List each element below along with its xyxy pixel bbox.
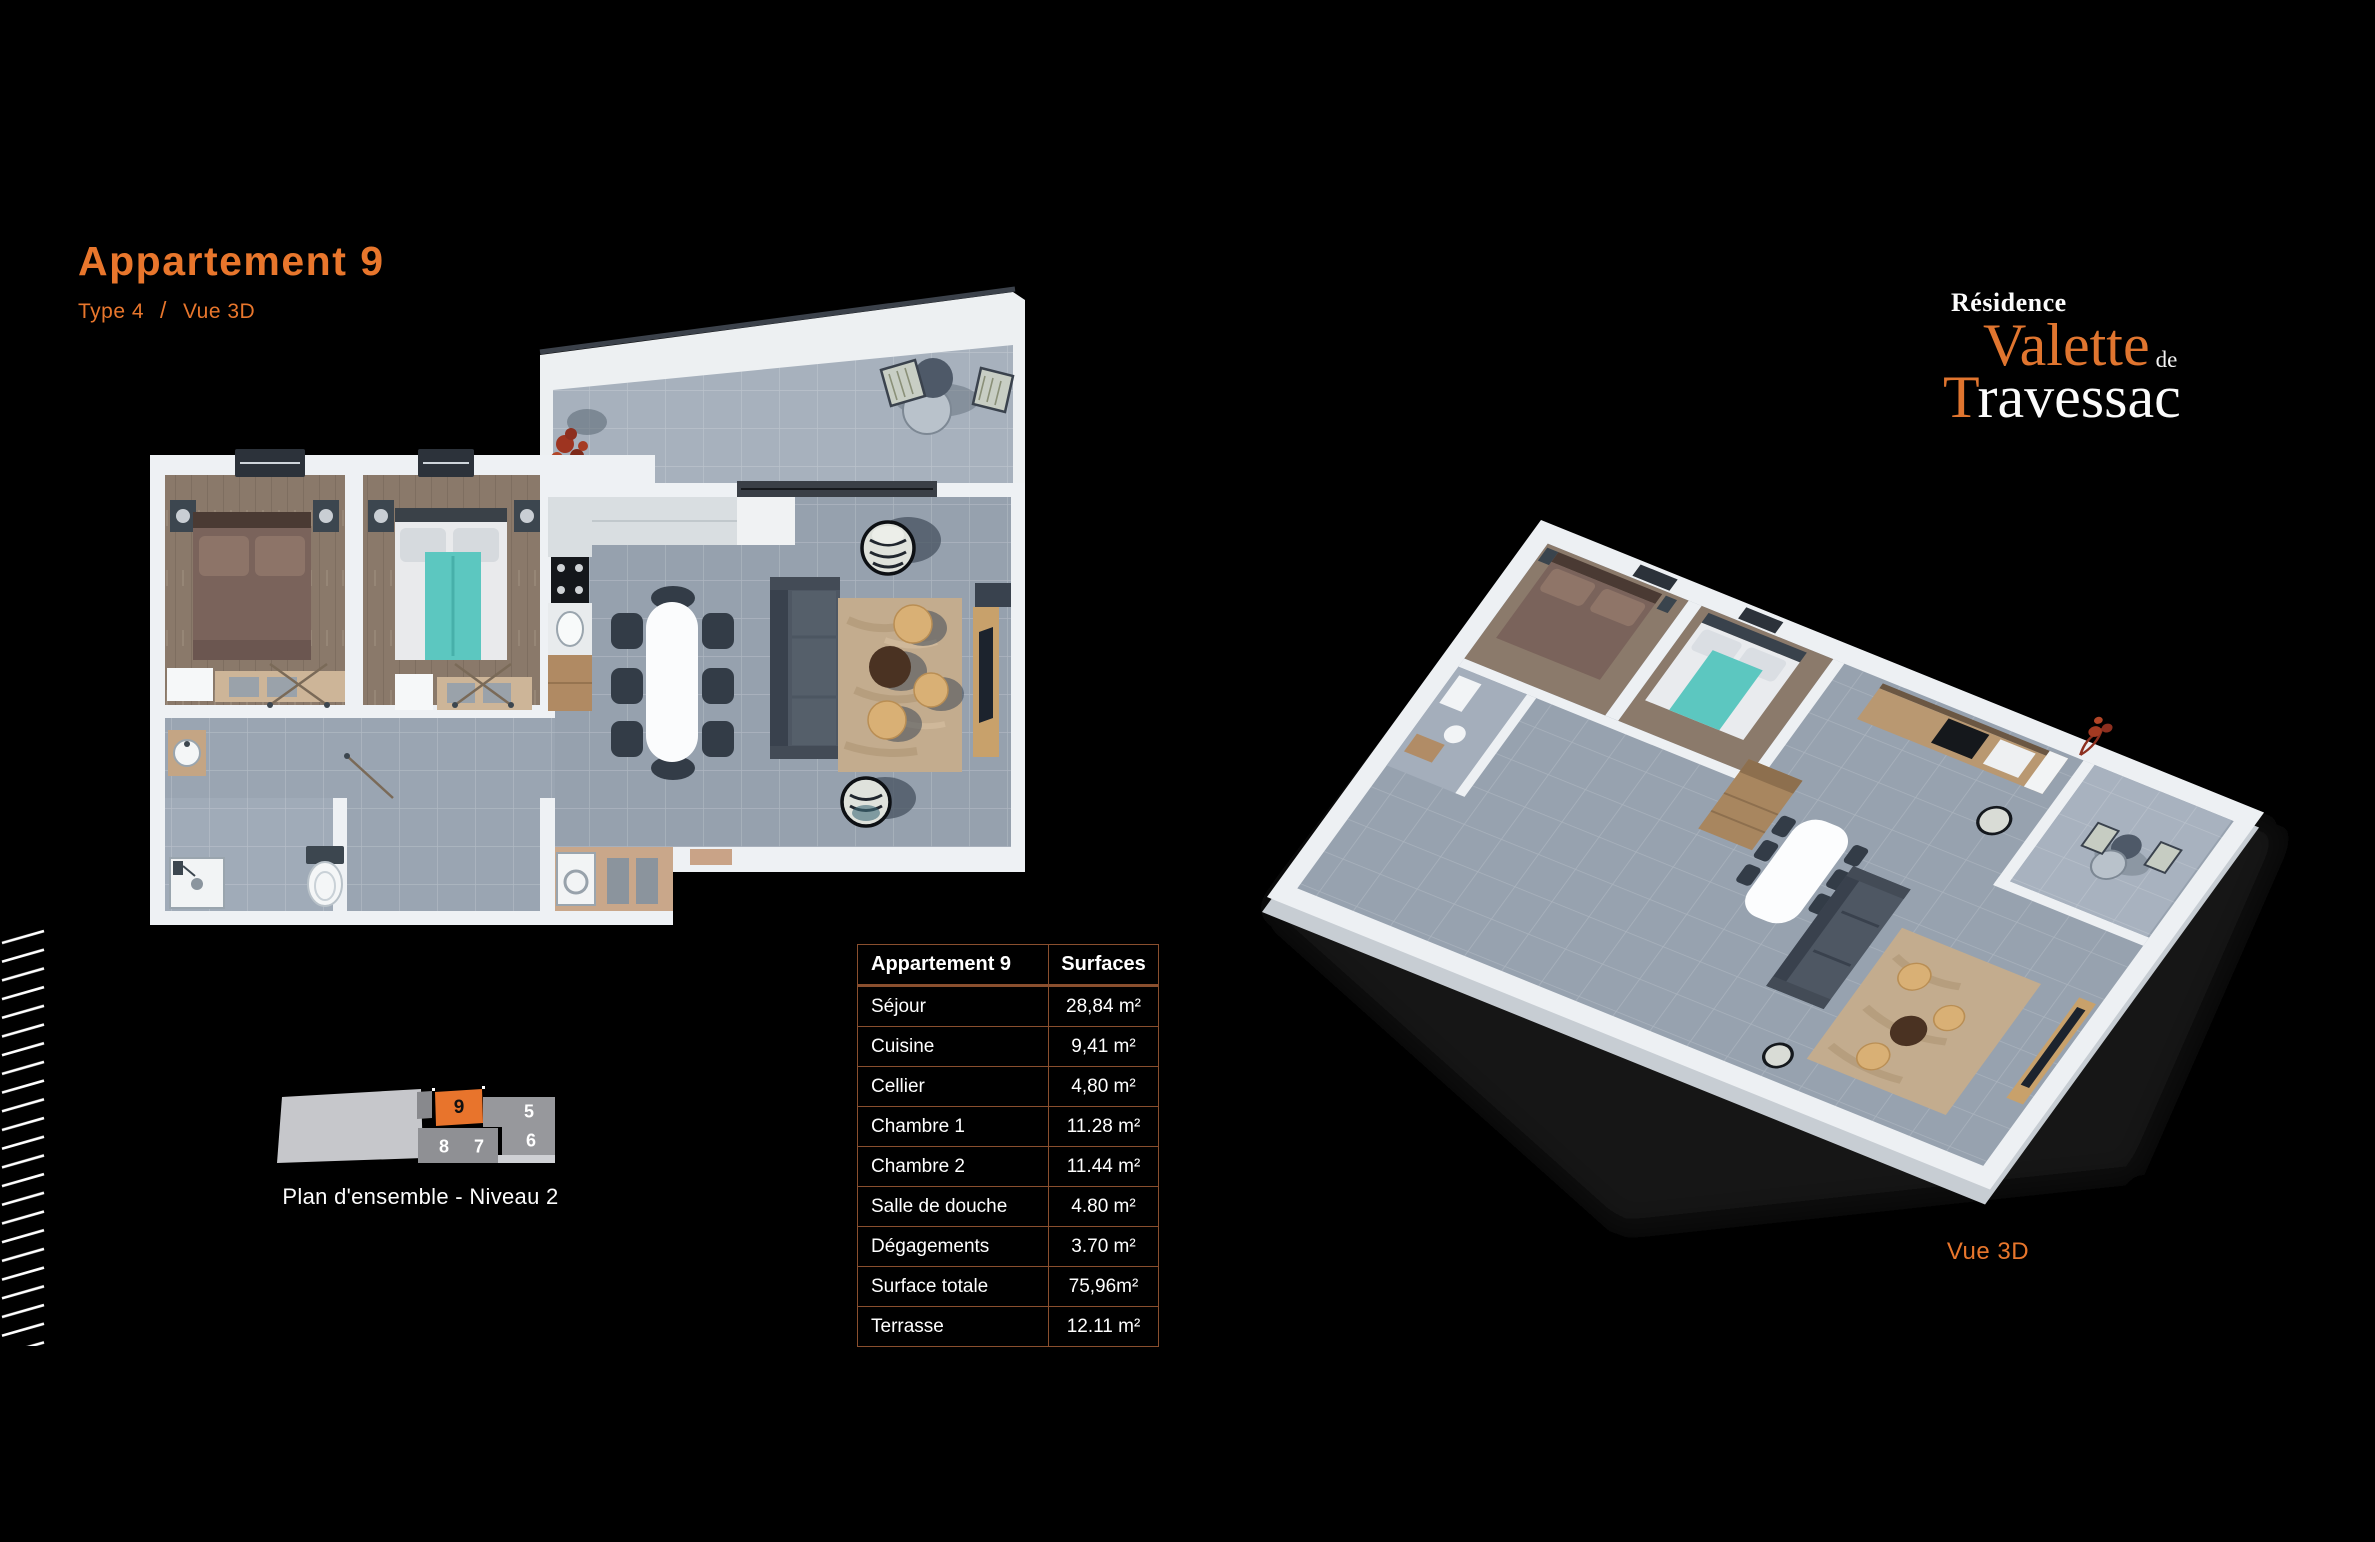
table-row: Surface totale75,96m² [858,1267,1159,1307]
table-header-value: Surfaces [1049,945,1159,986]
hob [551,557,589,603]
living-door-sill [690,849,732,865]
terrace-threshold [737,481,937,497]
table-row: Cuisine9,41 m² [858,1027,1159,1067]
sofa [770,577,840,759]
site-plan-caption: Plan d'ensemble - Niveau 2 [268,1184,573,1210]
wardrobe-1 [167,668,345,702]
terrace-chair-right [973,368,1013,412]
surfaces-table: Appartement 9 Surfaces Séjour28,84 m² Cu… [857,944,1159,1347]
floor-plan-2d [95,200,1045,940]
table-row: Terrasse12.11 m² [858,1307,1159,1347]
table-row: Chambre 211.44 m² [858,1147,1159,1187]
washing-machine [557,853,595,905]
view-3d [1200,480,2320,1300]
table-row: Séjour28,84 m² [858,986,1159,1027]
site-step [417,1091,432,1119]
site-building-slab [277,1089,423,1163]
table-row: Cellier4,80 m² [858,1067,1159,1107]
window-bedroom-1 [235,449,305,477]
site-band-87 [418,1128,498,1163]
brand-name-2: Travessac [1943,369,2293,426]
table-row: Chambre 111.28 m² [858,1107,1159,1147]
site-unit-label-7: 7 [474,1137,484,1158]
window-bedroom-2 [418,449,474,477]
view3d-caption: Vue 3D [1898,1238,2078,1266]
brand-initial: T [1943,364,1978,430]
site-unit-label-6: 6 [526,1131,536,1152]
brochure-page: Appartement 9 Type 4/Vue 3D Résidence Va… [0,0,2375,1542]
site-unit-label-8: 8 [439,1137,449,1158]
site-unit-label-9: 9 [454,1097,465,1119]
sink-vanity [168,730,206,776]
toilet [306,846,344,906]
shower [170,858,224,908]
table-header-label: Appartement 9 [858,945,1049,986]
site-unit-label-5: 5 [524,1102,534,1123]
brand-logo: Résidence Valettede Travessac [1943,288,2293,426]
dining-table [646,602,698,762]
tv-screen [979,627,993,723]
table-header-row: Appartement 9 Surfaces [858,945,1159,986]
table-row: Salle de douche4.80 m² [858,1187,1159,1227]
site-strip-bottom [498,1155,555,1163]
table-row: Dégagements3.70 m² [858,1227,1159,1267]
hatch-decoration [0,928,46,1346]
brand-de: de [2156,347,2178,372]
